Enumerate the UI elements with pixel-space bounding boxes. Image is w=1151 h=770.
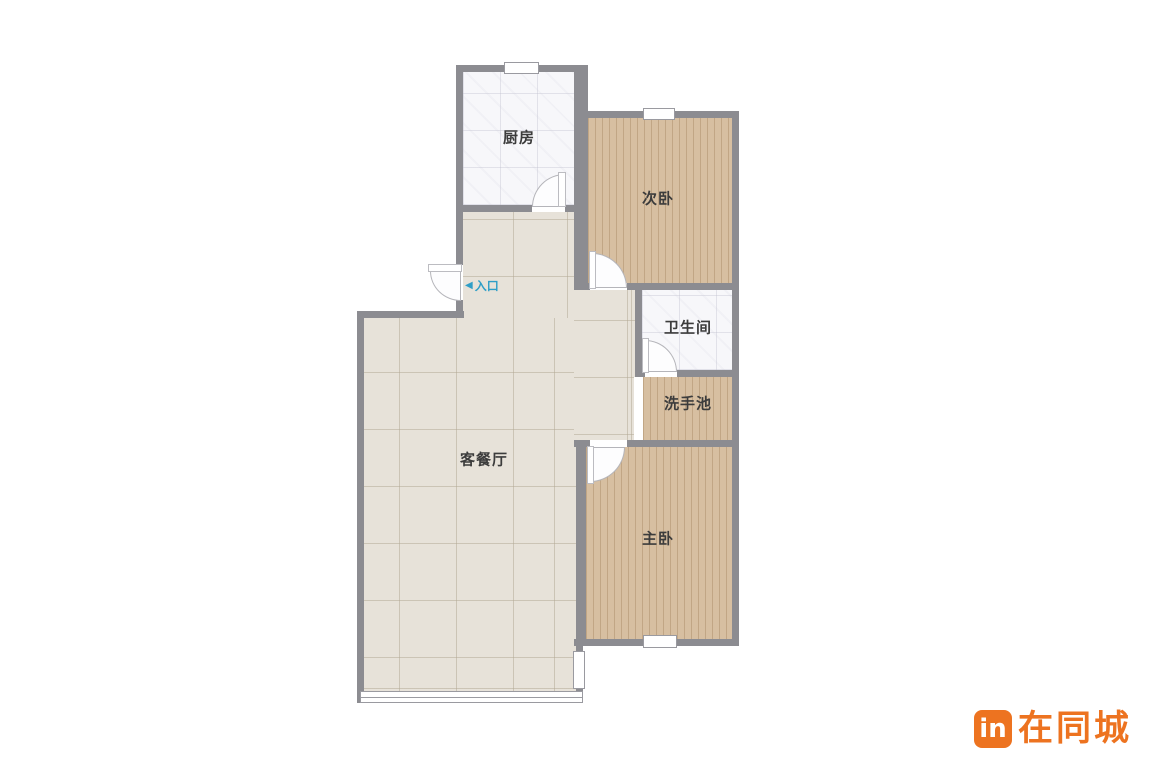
living-balcony-window — [360, 691, 583, 703]
entrance-marker: ◀ 入口 — [465, 279, 499, 293]
wall-bathroom-left — [635, 290, 642, 372]
room-label-washbasin: 洗手池 — [664, 393, 712, 414]
bathroom-door-leaf — [642, 338, 649, 373]
living-floor-upper — [463, 212, 574, 318]
second-bedroom-window — [643, 108, 675, 120]
wall-bedroom2-bottom-right — [627, 283, 739, 290]
room-label-second-bedroom: 次卧 — [642, 188, 674, 209]
brand-logo-icon: in — [974, 710, 1012, 748]
wall-kitchen-bottom-left — [456, 205, 532, 212]
wall-living-left — [357, 311, 364, 703]
living-floor-main — [364, 318, 576, 691]
brand-watermark: in 在同城 — [974, 710, 1132, 748]
wall-master-top-right — [627, 440, 739, 447]
wall-bathroom-bottom-right — [677, 370, 739, 377]
second-bedroom-door-leaf — [589, 251, 596, 289]
room-label-bathroom: 卫生间 — [664, 317, 712, 338]
wall-master-left — [576, 440, 586, 646]
wall-living-top-left — [357, 311, 464, 318]
living-side-window — [573, 651, 585, 689]
living-floor-hallway — [574, 290, 635, 440]
washbasin-passage-opening — [634, 377, 643, 440]
kitchen-window — [504, 62, 539, 74]
kitchen-door-leaf — [558, 172, 566, 207]
floor-plan: 厨房 次卧 卫生间 洗手池 主卧 客餐厅 ◀ 入口 in 在同城 — [0, 0, 1151, 770]
entrance-text: 入口 — [475, 279, 499, 293]
wall-bedroom2-bottom-left — [574, 283, 590, 290]
room-label-living-dining: 客餐厅 — [460, 449, 508, 470]
entrance-door-leaf — [428, 264, 462, 272]
master-bedroom-door-leaf — [587, 446, 594, 484]
brand-name-text: 在同城 — [1018, 710, 1132, 748]
entrance-arrow-icon: ◀ — [465, 279, 473, 293]
wall-kitchen-bedroom2 — [574, 65, 588, 290]
wall-kitchen-left — [456, 65, 463, 265]
wall-right-outer — [732, 111, 739, 646]
room-label-kitchen: 厨房 — [503, 127, 535, 148]
room-label-master-bedroom: 主卧 — [642, 528, 674, 549]
master-bedroom-window — [643, 635, 677, 648]
wall-kitchen-bottom-right — [565, 205, 588, 212]
entrance-door-swing — [430, 271, 461, 301]
